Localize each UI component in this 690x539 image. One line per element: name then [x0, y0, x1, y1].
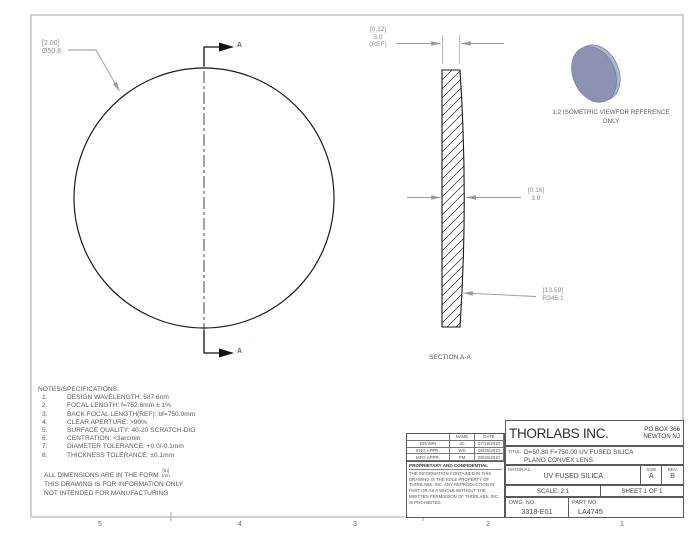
zone-label-5: 5 — [98, 521, 102, 528]
approvals-table: NAME DATE DRAWN JC 07/19/2010 ENG APPR. … — [406, 433, 505, 462]
approval-role: DRAWN — [407, 441, 450, 448]
note-text: BACK FOCAL LENGTH(REF): bf=750.0mm — [67, 411, 195, 419]
zone-label-4: 4 — [238, 521, 242, 528]
section-cut-line-top — [204, 47, 219, 66]
note-text: DIAMETER TOLERANCE: +0.0/-0.1mm — [67, 443, 184, 451]
approval-name: PM — [450, 454, 475, 461]
approval-name: JC — [450, 441, 475, 448]
note-item: 6.CENTRATION: <3arcmin — [38, 435, 268, 443]
center-dim-bracket: [0.16] — [520, 187, 552, 195]
edge-dim-ref: (REF) — [358, 41, 398, 49]
zone-label-1: 1 — [620, 521, 624, 528]
section-marker-bottom: A — [237, 348, 242, 355]
dims-form-line: ALL DIMENSIONS ARE IN THE FORM [in] mm — [44, 471, 183, 481]
center-thickness-dimension: [0.16] 3.9 — [520, 187, 552, 202]
size-cell: SIZE A — [641, 466, 662, 484]
company-name: THORLABS INC. — [509, 426, 609, 441]
note-item: 1.DESIGN WAVELENGTH: 587.6nm — [38, 394, 268, 402]
title-box: TITLE: D=50.80 F=750.00 UV FUSED SILICA … — [505, 446, 684, 465]
approval-role: MFG APPR. — [407, 454, 450, 461]
note-item: 8.THICKNESS TOLERANCE: ±0.1mm — [38, 452, 268, 460]
size-value: A — [641, 473, 661, 480]
material-cell: MATERIAL: UV FUSED SILICA — [506, 466, 641, 484]
sheet-cell: SHEET 1 OF 1 — [601, 486, 683, 496]
note-text: THICKNESS TOLERANCE: ±0.1mm — [67, 452, 174, 460]
note-num: 5. — [38, 427, 67, 435]
rev-label: REV. — [662, 467, 683, 472]
notes-title: NOTES/SPECIFICATIONS: — [38, 386, 268, 394]
company-address-line1: PO BOX 366 — [643, 426, 680, 433]
section-arrow-bottom-icon — [219, 349, 234, 358]
note-num: 6. — [38, 435, 67, 443]
center-dim-value: 3.9 — [520, 195, 552, 203]
isometric-caption: 1:2 ISOMETRIC VIEWFOR REFERENCE ONLY — [536, 109, 686, 126]
note-num: 3. — [38, 411, 67, 419]
dwg-no-cell: DWG. NO. 3318-E01 — [506, 498, 569, 517]
isometric-caption-line2: ONLY — [536, 118, 686, 127]
dwg-no-value: 3318-E01 — [506, 507, 568, 516]
diameter-dim-bracket: [2.00] — [42, 40, 61, 48]
proprietary-notice: PROPRIETARY AND CONFIDENTIAL THE INFORMA… — [406, 461, 505, 518]
note-num: 1. — [38, 394, 67, 402]
material-value: UV FUSED SILICA — [506, 473, 640, 480]
dimension-form-note: ALL DIMENSIONS ARE IN THE FORM [in] mm T… — [44, 471, 183, 498]
note-text: FOCAL LENGTH: f=752.6mm ± 1% — [67, 402, 171, 410]
dims-form-text: ALL DIMENSIONS ARE IN THE FORM — [44, 472, 159, 481]
title-label: TITLE: — [508, 449, 521, 454]
section-cut-line-bottom — [204, 330, 219, 353]
diameter-dimension: [2.00] Ø50.8 — [42, 40, 61, 56]
radius-leader-line — [464, 293, 537, 297]
note-text: CLEAR APERTURE: >90% — [67, 419, 147, 427]
note-num: 7. — [38, 443, 67, 451]
section-arrow-top-icon — [219, 43, 234, 52]
edge-dim-value: 3.0 — [358, 34, 398, 42]
section-marker-top: A — [237, 42, 242, 49]
scale-row: SCALE: 2:1 SHEET 1 OF 1 — [505, 485, 684, 497]
info-only-line: THIS DRAWING IS FOR INFORMATION ONLY — [44, 481, 183, 490]
scale-cell: SCALE: 2:1 — [506, 486, 601, 496]
size-label: SIZE — [641, 467, 661, 472]
isometric-lens — [563, 38, 629, 110]
material-row: MATERIAL: UV FUSED SILICA SIZE A REV. B — [505, 465, 684, 485]
notes-specifications: NOTES/SPECIFICATIONS: 1.DESIGN WAVELENGT… — [38, 386, 268, 460]
note-text: DESIGN WAVELENGTH: 587.6nm — [67, 394, 169, 402]
part-no-label: PART NO. — [572, 500, 598, 506]
fraction-mm: mm — [162, 474, 170, 479]
drawing-title-line1: D=50.80 F=750.00 UV FUSED SILICA — [524, 449, 683, 457]
note-num: 4. — [38, 419, 67, 427]
isometric-lens-face — [563, 39, 625, 109]
edge-thickness-dimension: [0.12] 3.0 (REF) — [358, 26, 398, 49]
rev-cell: REV. B — [662, 466, 683, 484]
zone-label-2: 2 — [486, 521, 490, 528]
zone-label-3: 3 — [353, 521, 357, 528]
approvals-header-name: NAME — [450, 434, 475, 441]
radius-dimension: [13.59] R345.1 — [535, 287, 571, 302]
lens-section-profile — [442, 70, 464, 327]
company-address-line2: NEWTON NJ — [643, 433, 680, 440]
drawing-title-line2: PLANO CONVEX LENS — [524, 457, 683, 465]
approval-date: 07/19/2010 — [475, 441, 504, 448]
dwg-row: DWG. NO. 3318-E01 PART NO. LA4745 — [505, 497, 684, 518]
rev-value: B — [662, 473, 683, 480]
proprietary-heading: PROPRIETARY AND CONFIDENTIAL — [409, 463, 502, 470]
note-text: CENTRATION: <3arcmin — [67, 435, 140, 443]
radius-dim-bracket: [13.59] — [535, 287, 571, 295]
approvals-corner-cell — [407, 434, 450, 441]
edge-dim-bracket: [0.12] — [358, 26, 398, 34]
note-item: 4.CLEAR APERTURE: >90% — [38, 419, 268, 427]
diameter-leader-line — [68, 50, 120, 91]
diameter-dim-value: Ø50.8 — [42, 48, 61, 56]
drawing-sheet: [2.00] Ø50.8 A A [0.12] 3.0 (REF) [0.16]… — [0, 0, 690, 539]
proprietary-body: THE INFORMATION CONTAINED IN THIS DRAWIN… — [409, 471, 502, 505]
in-over-mm-fraction: [in] mm — [162, 469, 170, 479]
approvals-header-date: DATE — [475, 434, 504, 441]
approval-date: 08/25/2010 — [475, 448, 504, 455]
note-item: 3.BACK FOCAL LENGTH(REF): bf=750.0mm — [38, 411, 268, 419]
isometric-caption-line1: 1:2 ISOMETRIC VIEWFOR REFERENCE — [536, 109, 686, 118]
approval-name: WD — [450, 448, 475, 455]
radius-dim-value: R345.1 — [535, 295, 571, 303]
material-label: MATERIAL: — [508, 467, 531, 472]
note-num: 8. — [38, 452, 67, 460]
note-item: 2.FOCAL LENGTH: f=752.6mm ± 1% — [38, 402, 268, 410]
approval-date: 08/26/2010 — [475, 454, 504, 461]
approval-role: ENG APPR. — [407, 448, 450, 455]
dwg-no-label: DWG. NO. — [509, 500, 536, 506]
part-no-value: LA4745 — [578, 507, 683, 516]
company-block: THORLABS INC. PO BOX 366 NEWTON NJ — [505, 420, 684, 446]
part-no-cell: PART NO. LA4745 — [569, 498, 683, 517]
note-text: SURFACE QUALITY: 40-20 SCRATCH-DIG — [67, 427, 195, 435]
note-item: 5.SURFACE QUALITY: 40-20 SCRATCH-DIG — [38, 427, 268, 435]
drawing-title: D=50.80 F=750.00 UV FUSED SILICA PLANO C… — [524, 449, 683, 464]
not-mfg-line: NOT INTENDED FOR MANUFACTURING — [44, 490, 183, 499]
note-item: 7.DIAMETER TOLERANCE: +0.0/-0.1mm — [38, 443, 268, 451]
section-view-label: SECTION A-A — [400, 354, 500, 362]
company-address: PO BOX 366 NEWTON NJ — [643, 426, 680, 440]
note-num: 2. — [38, 402, 67, 410]
